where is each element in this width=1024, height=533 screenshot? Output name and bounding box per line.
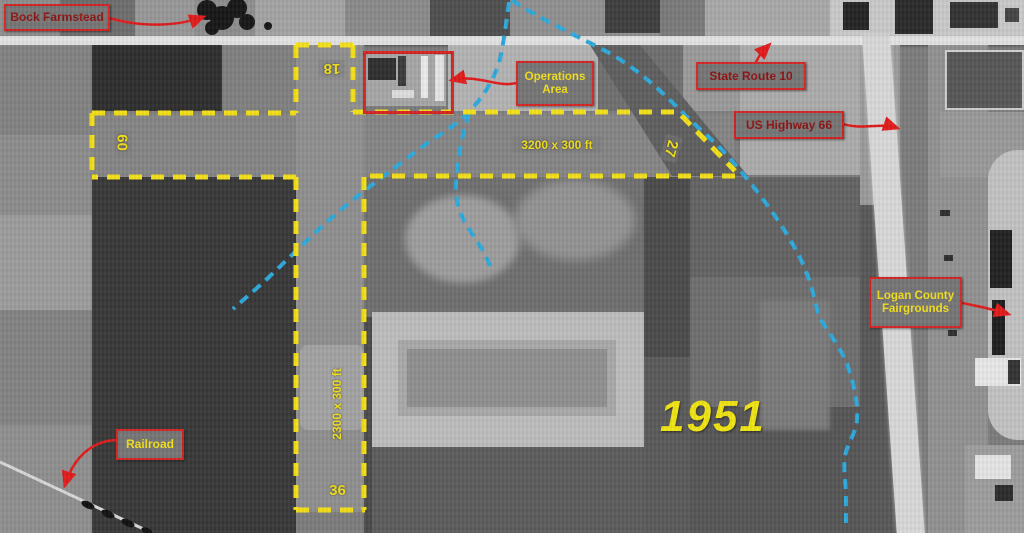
label-us-highway-66-text: US Highway 66 — [746, 119, 832, 132]
label-us-highway-66: US Highway 66 — [734, 111, 844, 139]
runway-number-36: 36 — [324, 481, 351, 499]
runway-dimension-north-south: 2300 x 300 ft — [330, 357, 344, 451]
runway-number-18-text: 18 — [324, 60, 341, 77]
label-fairgrounds-line1: Logan County — [877, 290, 954, 302]
railroad-track — [0, 462, 154, 533]
arrow-fairgrounds — [957, 302, 1008, 314]
label-bock-farmstead-text: Bock Farmstead — [10, 11, 103, 24]
creek-south-branch — [456, 113, 490, 266]
runway-number-18: 18 — [319, 60, 345, 77]
runway-number-36-text: 36 — [329, 482, 346, 499]
runway-dimension-east-west-text: 3200 x 300 ft — [521, 138, 592, 152]
label-railroad: Railroad — [116, 429, 184, 460]
arrow-state-route-10 — [756, 45, 769, 62]
annotated-aerial-photo-1951: Bock Farmstead Operations Area State Rou… — [0, 0, 1024, 533]
label-operations-area-line2: Area — [542, 84, 568, 96]
arrow-us-highway-66 — [840, 123, 897, 128]
label-logan-county-fairgrounds: Logan County Fairgrounds — [869, 277, 962, 328]
year-overlay: 1951 — [660, 392, 766, 442]
runway-number-09-text: 09 — [115, 134, 132, 151]
creek-southwest-branch — [233, 2, 509, 309]
label-fairgrounds-line2: Fairgrounds — [882, 303, 949, 315]
year-overlay-text: 1951 — [660, 392, 766, 441]
runway-dimension-north-south-text: 2300 x 300 ft — [330, 368, 344, 439]
arrow-operations-area — [452, 78, 516, 84]
runway-number-09: 09 — [115, 130, 132, 156]
label-operations-area: Operations Area — [516, 61, 594, 106]
label-railroad-text: Railroad — [126, 438, 174, 451]
label-bock-farmstead: Bock Farmstead — [4, 4, 110, 31]
label-operations-area-line1: Operations — [525, 71, 586, 83]
runway-dimension-east-west: 3200 x 300 ft — [512, 136, 602, 153]
arrow-bock-farmstead — [109, 17, 203, 25]
label-state-route-10: State Route 10 — [696, 62, 806, 90]
tree-cluster — [197, 0, 272, 35]
operations-area-outline — [363, 51, 454, 114]
arrow-railroad — [65, 440, 116, 485]
label-state-route-10-text: State Route 10 — [709, 70, 792, 83]
